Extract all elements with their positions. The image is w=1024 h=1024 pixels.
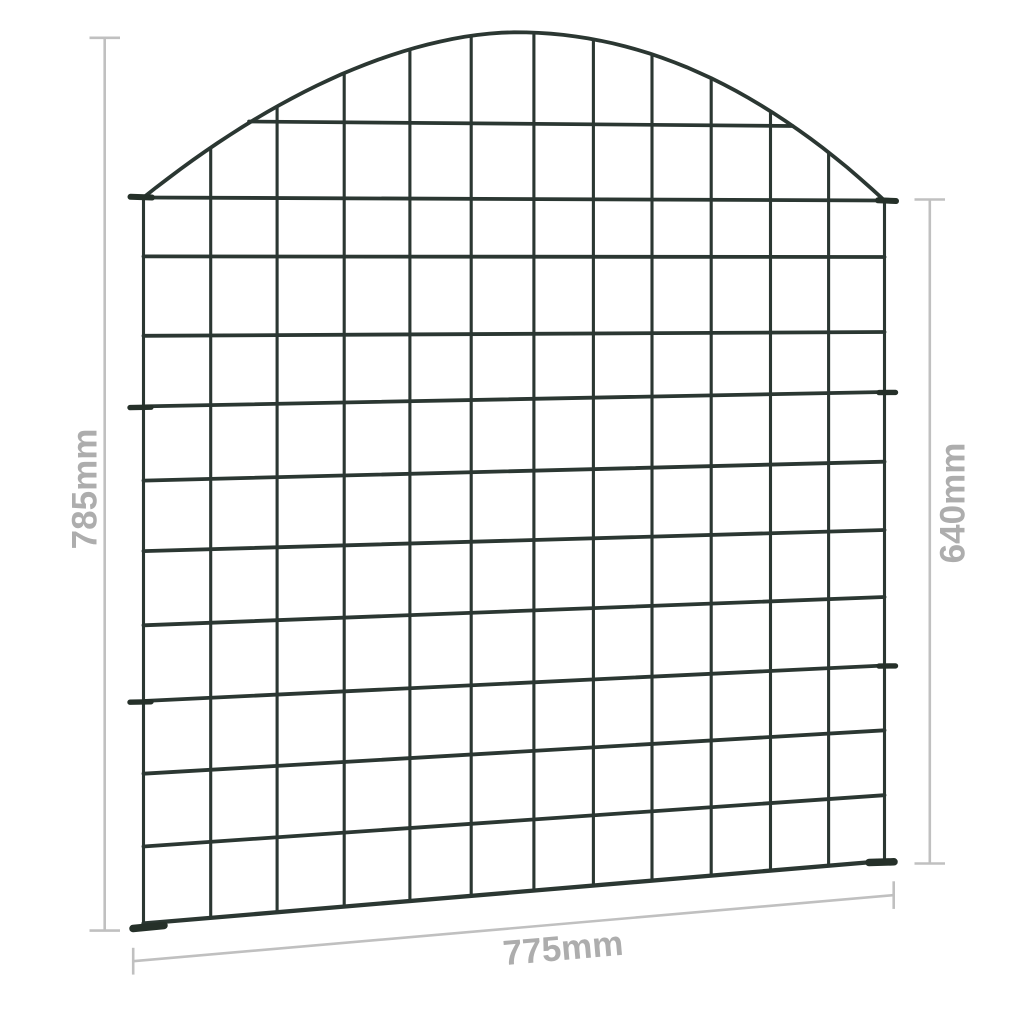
svg-text:785mm: 785mm [66, 429, 105, 550]
svg-text:640mm: 640mm [934, 443, 973, 564]
